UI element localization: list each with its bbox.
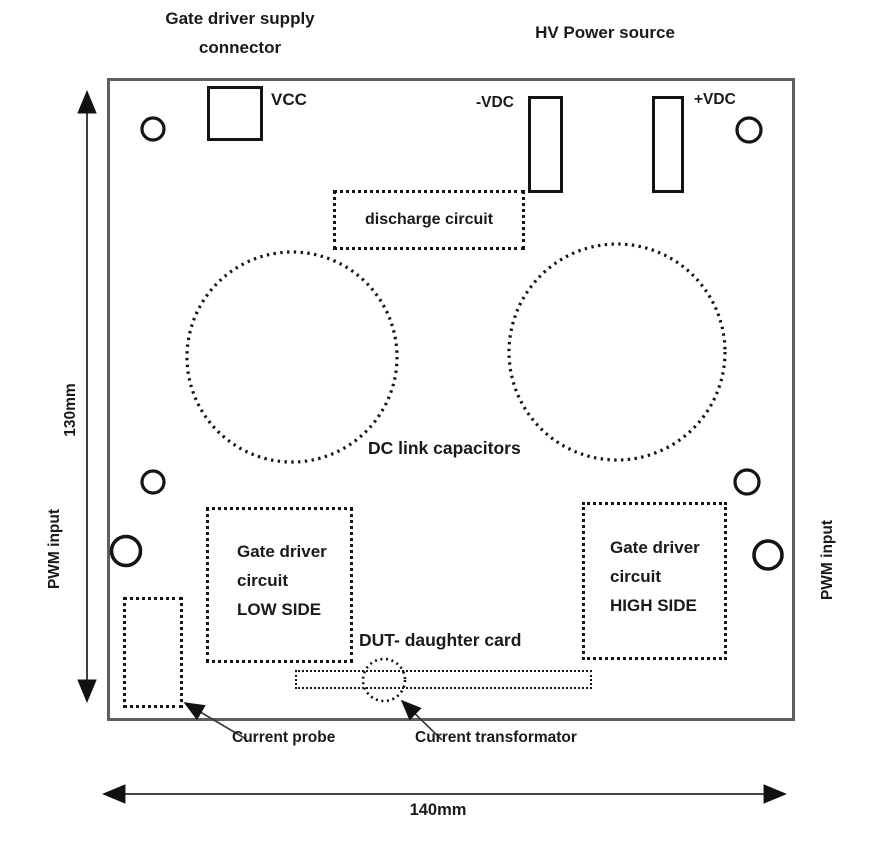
current-transformator-label: Current transformator bbox=[415, 729, 577, 747]
board-height-label: 130mm bbox=[62, 370, 82, 450]
pcb-layout-diagram: Gate driver supply connector HV Power so… bbox=[0, 0, 876, 847]
vcc-label: VCC bbox=[271, 90, 307, 110]
title-gate-driver-supply-connector: Gate driver supply connector bbox=[130, 4, 350, 62]
gate-driver-low-label: Gate driver circuit LOW SIDE bbox=[237, 537, 327, 624]
gate-driver-high-line3: HIGH SIDE bbox=[610, 591, 700, 620]
gate-driver-high-line1: Gate driver bbox=[610, 533, 700, 562]
discharge-circuit-label: discharge circuit bbox=[365, 211, 493, 229]
neg-vdc-label: -VDC bbox=[476, 94, 514, 112]
gate-driver-low-line3: LOW SIDE bbox=[237, 595, 327, 624]
current-probe-label: Current probe bbox=[232, 729, 335, 747]
current-probe-box bbox=[123, 597, 183, 708]
pwm-input-right-label: PWM input bbox=[819, 505, 839, 615]
daughter-card-slot bbox=[295, 670, 592, 689]
neg-vdc-connector bbox=[528, 96, 563, 193]
pos-vdc-connector bbox=[652, 96, 684, 193]
board-width-label: 140mm bbox=[388, 801, 488, 820]
gate-driver-high-line2: circuit bbox=[610, 562, 700, 591]
title-hv-power-source: HV Power source bbox=[500, 18, 710, 47]
dc-link-capacitors-label: DC link capacitors bbox=[368, 438, 521, 459]
gate-driver-low-line2: circuit bbox=[237, 566, 327, 595]
pwm-input-left-label: PWM input bbox=[46, 494, 66, 604]
pos-vdc-label: +VDC bbox=[694, 91, 736, 109]
dut-daughter-card-label: DUT- daughter card bbox=[359, 630, 521, 651]
discharge-circuit-box: discharge circuit bbox=[333, 190, 525, 250]
vcc-connector bbox=[207, 86, 263, 141]
gate-driver-high-label: Gate driver circuit HIGH SIDE bbox=[610, 533, 700, 620]
gate-driver-low-line1: Gate driver bbox=[237, 537, 327, 566]
